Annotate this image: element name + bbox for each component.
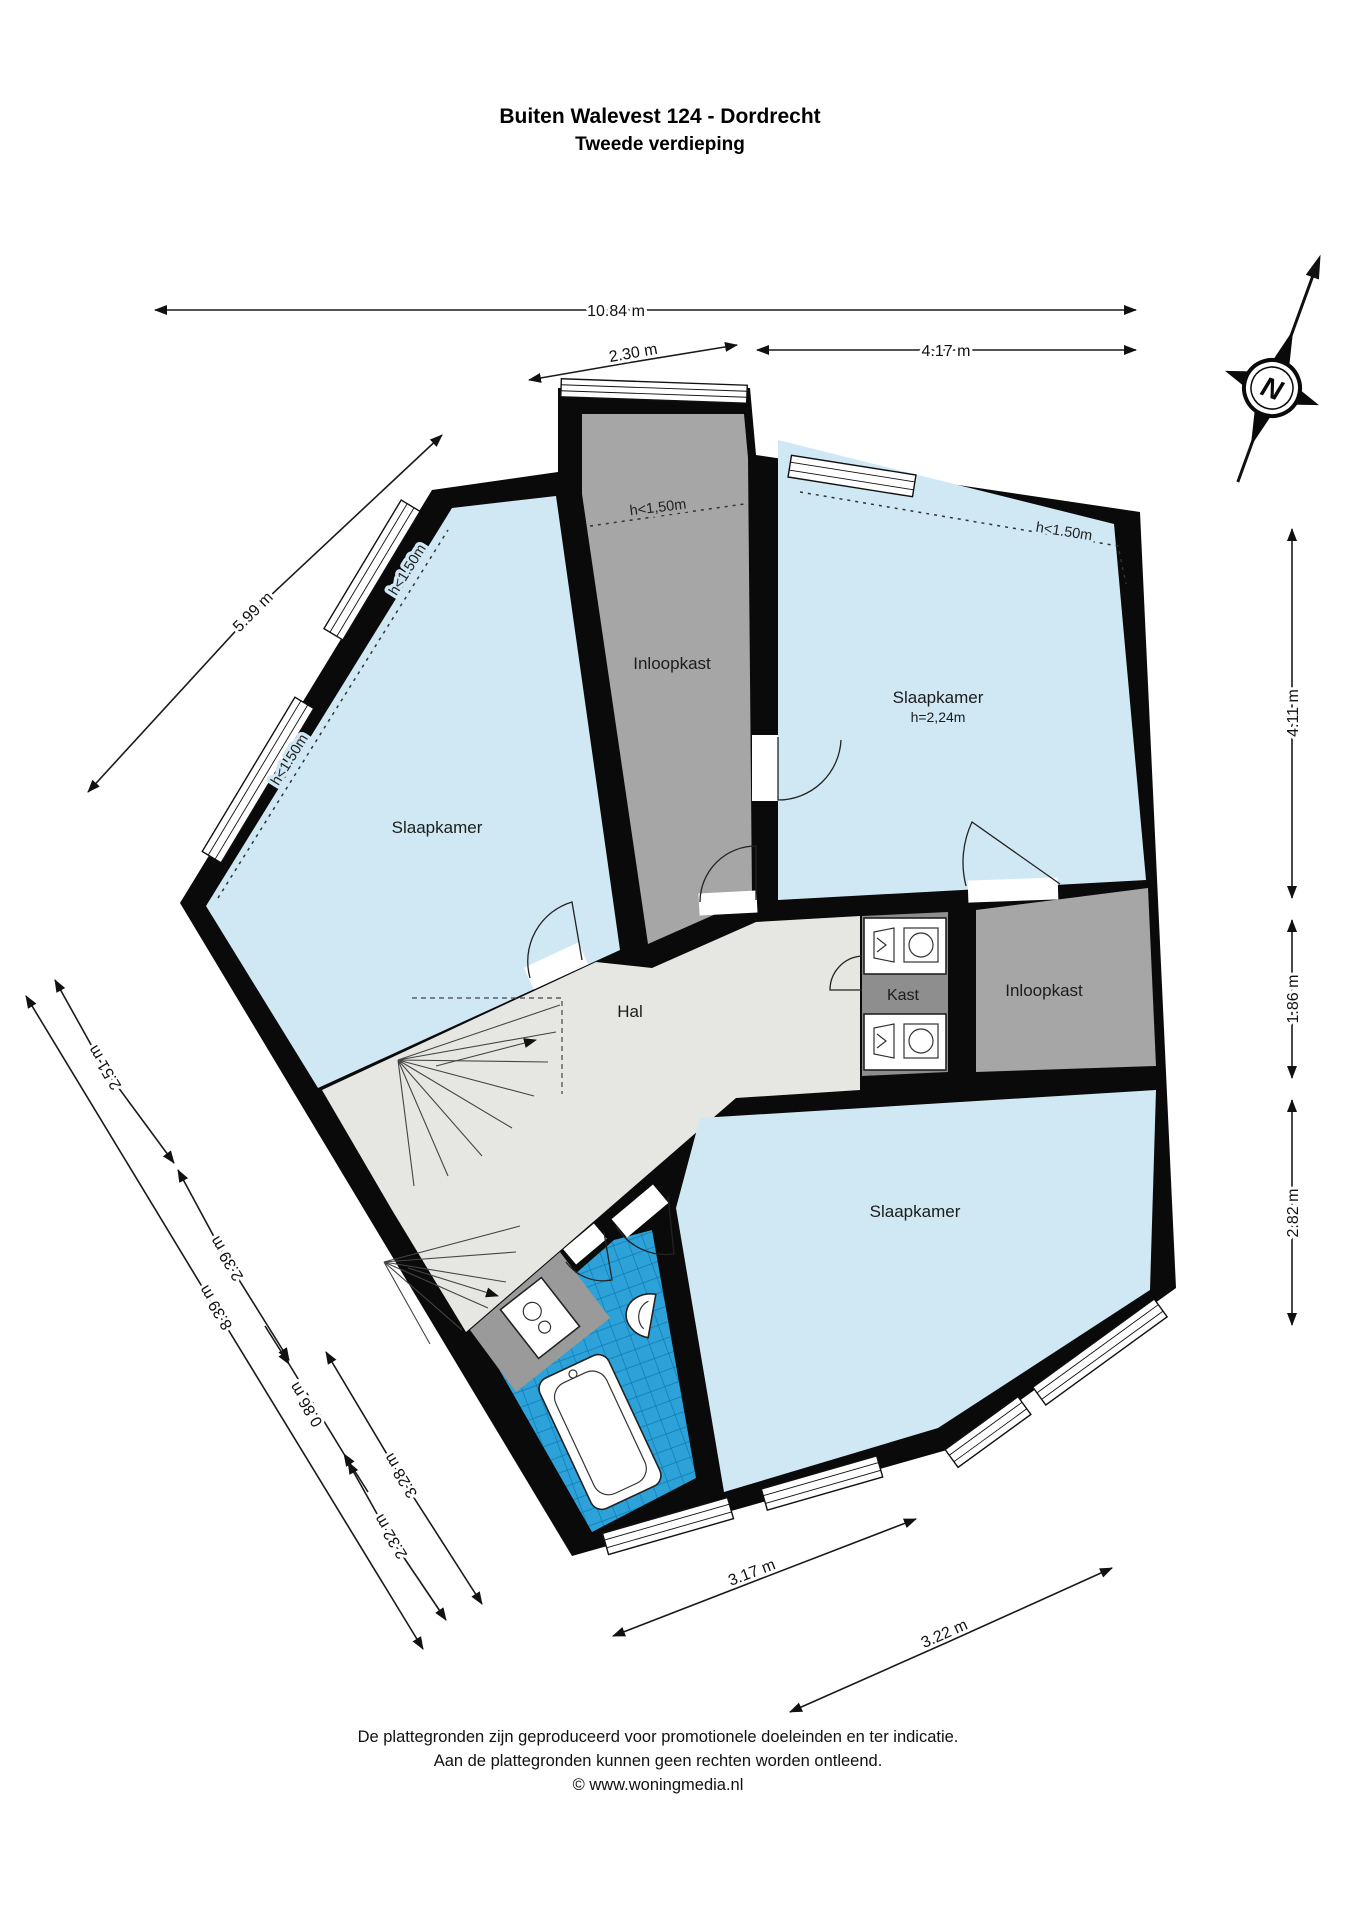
svg-text:3.17 m: 3.17 m bbox=[726, 1556, 778, 1589]
label-slaapkamer-top-right-height: h=2,24m bbox=[911, 709, 966, 725]
footer-disclaimer-2: Aan de plattegronden kunnen geen rechten… bbox=[434, 1752, 883, 1770]
label-hal: Hal bbox=[617, 1002, 643, 1021]
washer-icon bbox=[864, 918, 946, 974]
svg-text:4.17 m: 4.17 m bbox=[922, 343, 971, 360]
svg-text:0.86 m: 0.86 m bbox=[287, 1379, 327, 1430]
room-slaapkamer-bottom-right bbox=[676, 1090, 1156, 1492]
svg-text:3.22 m: 3.22 m bbox=[919, 1617, 971, 1652]
svg-text:5.99 m: 5.99 m bbox=[230, 589, 277, 636]
dimension-top-right: 4.17 m bbox=[757, 343, 1136, 360]
label-slaapkamer-top-right: Slaapkamer bbox=[893, 688, 984, 707]
svg-text:2.39 m: 2.39 m bbox=[207, 1233, 247, 1284]
dimension-bottom-right: 3.22 m bbox=[790, 1568, 1112, 1712]
label-slaapkamer-bottom-right: Slaapkamer bbox=[870, 1202, 961, 1221]
svg-text:10.84 m: 10.84 m bbox=[587, 303, 645, 320]
page-title: Buiten Walevest 124 - Dordrecht bbox=[499, 105, 820, 128]
footer-credit: © www.woningmedia.nl bbox=[573, 1776, 744, 1794]
label-kast: Kast bbox=[887, 987, 920, 1004]
floorplan-page: { "title": { "line1": "Buiten Walevest 1… bbox=[0, 0, 1358, 1920]
svg-text:8.39 m: 8.39 m bbox=[196, 1282, 236, 1333]
label-slaapkamer-left: Slaapkamer bbox=[392, 818, 483, 837]
svg-text:1.86 m: 1.86 m bbox=[1285, 975, 1302, 1024]
svg-text:3.28 m: 3.28 m bbox=[381, 1450, 421, 1501]
floorplan-canvas: Buiten Walevest 124 - Dordrecht Tweede v… bbox=[0, 0, 1358, 1920]
footer-disclaimer-1: De plattegronden zijn geproduceerd voor … bbox=[358, 1728, 959, 1746]
svg-text:2.82 m: 2.82 m bbox=[1285, 1189, 1302, 1238]
label-inloopkast-right: Inloopkast bbox=[1005, 981, 1083, 1000]
page-subtitle: Tweede verdieping bbox=[575, 134, 745, 155]
label-inloopkast-top: Inloopkast bbox=[633, 654, 711, 673]
dimension-total-width: 10.84 m bbox=[155, 303, 1136, 320]
room-inloopkast-right bbox=[976, 888, 1156, 1072]
dimension-lower-left-inner: 3.28 m bbox=[326, 1352, 482, 1604]
svg-text:4.11 m: 4.11 m bbox=[1285, 689, 1302, 737]
dimension-top-left: 2.30 m bbox=[529, 341, 737, 380]
dimension-right-upper: 4.11 m bbox=[1285, 529, 1302, 898]
svg-text:2.51 m: 2.51 m bbox=[85, 1042, 125, 1093]
dimension-right-lower: 2.82 m bbox=[1285, 1100, 1302, 1325]
dimension-lower-left-1: 2.51 m bbox=[55, 980, 174, 1163]
svg-text:2.32 m: 2.32 m bbox=[371, 1511, 411, 1562]
dimension-lower-left-2: 2.39 m bbox=[178, 1170, 289, 1360]
dimension-right-middle: 1.86 m bbox=[1285, 920, 1302, 1078]
dimension-lower-left-3: 0.86 m bbox=[265, 1326, 368, 1492]
dryer-icon bbox=[864, 1014, 946, 1070]
compass-icon: N bbox=[1191, 237, 1358, 499]
